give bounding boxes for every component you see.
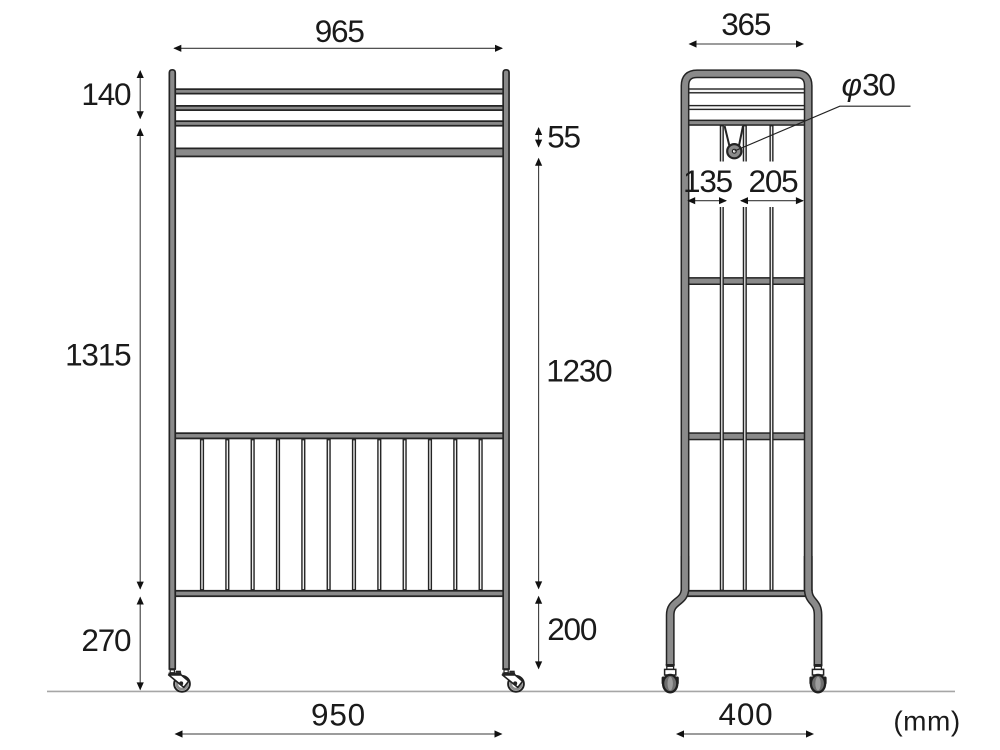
svg-text:135: 135	[683, 163, 733, 199]
svg-text:400: 400	[719, 696, 774, 732]
svg-text:φ30: φ30	[842, 67, 896, 103]
svg-text:1315: 1315	[65, 337, 131, 373]
svg-text:950: 950	[311, 697, 366, 733]
svg-text:140: 140	[81, 76, 131, 112]
svg-text:1230: 1230	[546, 353, 612, 389]
svg-text:365: 365	[721, 6, 771, 42]
svg-text:(mm): (mm)	[893, 706, 960, 737]
svg-text:55: 55	[547, 119, 580, 155]
svg-text:965: 965	[315, 13, 365, 49]
svg-text:270: 270	[81, 622, 131, 658]
svg-text:205: 205	[749, 163, 799, 199]
svg-text:200: 200	[547, 611, 597, 647]
